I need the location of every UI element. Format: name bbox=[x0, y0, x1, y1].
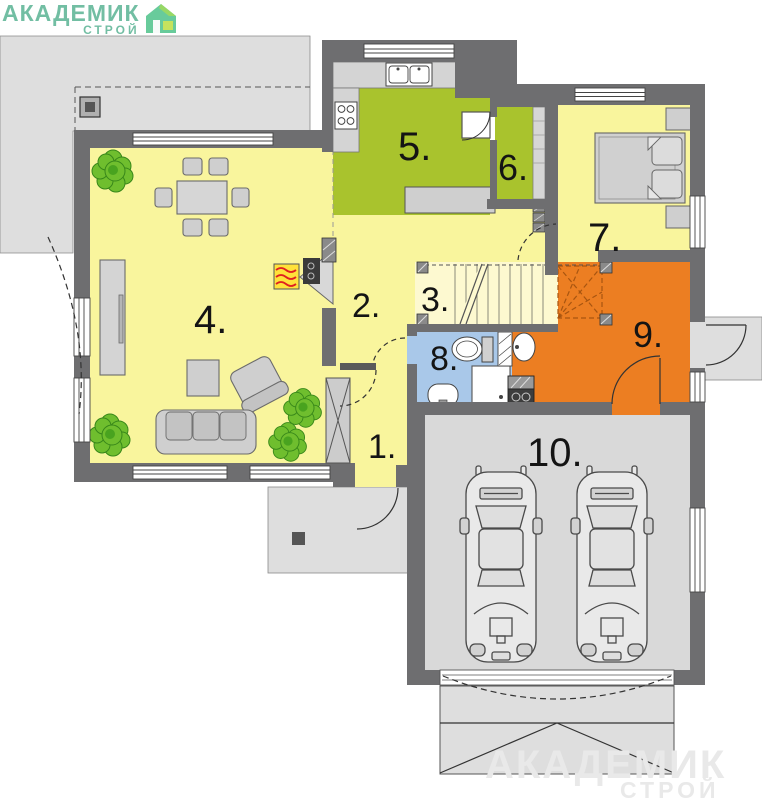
utility-sink bbox=[513, 333, 535, 361]
car bbox=[571, 466, 653, 662]
brand-logo: АКАДЕМИК СТРОЙ bbox=[2, 2, 178, 36]
watermark-sub: СТРОЙ bbox=[620, 776, 720, 800]
watermark: АКАДЕМИК СТРОЙ bbox=[485, 743, 726, 800]
window-living-top bbox=[133, 133, 273, 145]
entry-porch bbox=[268, 487, 410, 573]
pantry-shelves bbox=[533, 107, 545, 232]
window-living-bottom-2 bbox=[250, 466, 330, 479]
car bbox=[460, 466, 542, 662]
room-label-9: 9. bbox=[633, 314, 663, 355]
boiler-appliance bbox=[508, 376, 534, 405]
house-logo-icon bbox=[144, 3, 178, 35]
window-living-bottom-1 bbox=[133, 466, 227, 479]
brand-sub: СТРОЙ bbox=[83, 24, 140, 36]
sofa bbox=[156, 410, 256, 454]
floor-corridor bbox=[415, 209, 545, 265]
tv-cabinet bbox=[100, 260, 125, 375]
pantry-door-leaf bbox=[462, 112, 490, 138]
brand-name: АКАДЕМИК bbox=[2, 2, 140, 24]
room-label-4: 4. bbox=[194, 298, 227, 342]
window-utility-right bbox=[690, 372, 705, 402]
side-porch bbox=[704, 317, 762, 380]
room-label-6: 6. bbox=[498, 147, 528, 188]
room-label-5: 5. bbox=[398, 125, 431, 169]
kitchen-sink bbox=[386, 63, 432, 86]
room-label-1: 1. bbox=[368, 428, 396, 466]
room-label-2: 2. bbox=[352, 287, 380, 325]
porch-column bbox=[292, 532, 305, 545]
window-kitchen bbox=[364, 44, 454, 58]
kitchen-island bbox=[405, 187, 495, 213]
living-hall-door-leaf bbox=[340, 363, 376, 370]
stove bbox=[335, 102, 357, 129]
fireplace-icon bbox=[274, 264, 299, 289]
floor-utility bbox=[558, 262, 690, 410]
room-label-8: 8. bbox=[430, 340, 458, 378]
floorplan-drawing: 1. 2. 3. 4. 5. 6. 7. 8. 9. 10. АКАДЕМИК … bbox=[0, 0, 762, 800]
room-label-3: 3. bbox=[421, 281, 449, 319]
window-left-2 bbox=[74, 378, 90, 442]
terrace-column bbox=[80, 97, 100, 117]
coffee-table bbox=[187, 360, 219, 396]
nightstand bbox=[666, 108, 692, 130]
room-label-10: 10. bbox=[527, 431, 583, 475]
window-garage-right bbox=[690, 508, 705, 592]
window-bedroom-top bbox=[575, 88, 645, 101]
shaft bbox=[498, 332, 512, 366]
floorplan-page: 1. 2. 3. 4. 5. 6. 7. 8. 9. 10. АКАДЕМИК … bbox=[0, 0, 762, 800]
room-label-7: 7. bbox=[588, 216, 621, 260]
nightstand bbox=[666, 206, 692, 228]
window-bedroom-right bbox=[690, 196, 705, 248]
wall-shaft-hatch bbox=[322, 238, 336, 262]
pier-x-brace bbox=[326, 378, 350, 463]
bed bbox=[595, 133, 685, 203]
shower bbox=[472, 366, 510, 406]
